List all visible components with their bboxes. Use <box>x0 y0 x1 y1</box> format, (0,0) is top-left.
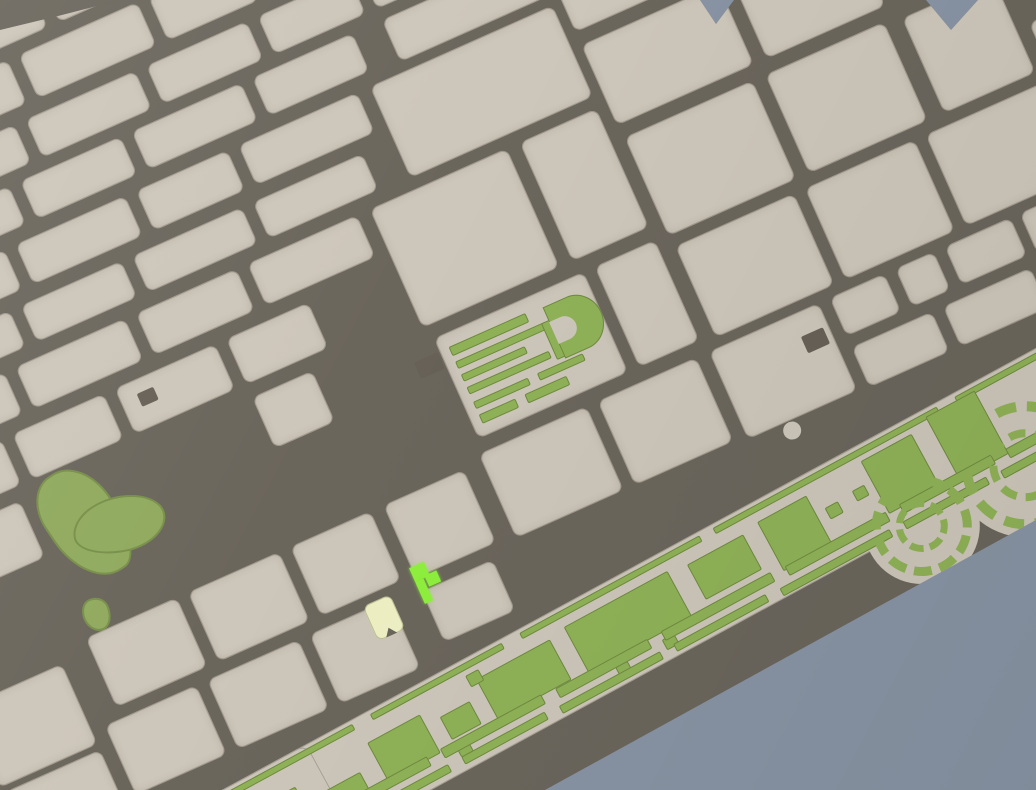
city-map-canvas[interactable] <box>0 0 1036 790</box>
building-footprint <box>414 352 445 379</box>
city-block <box>829 274 901 337</box>
city-block <box>131 83 258 170</box>
city-block <box>1029 0 1036 67</box>
city-block <box>895 252 950 307</box>
garden-lawn-strip <box>524 376 570 404</box>
city-block <box>252 371 335 449</box>
city-block <box>12 393 124 479</box>
